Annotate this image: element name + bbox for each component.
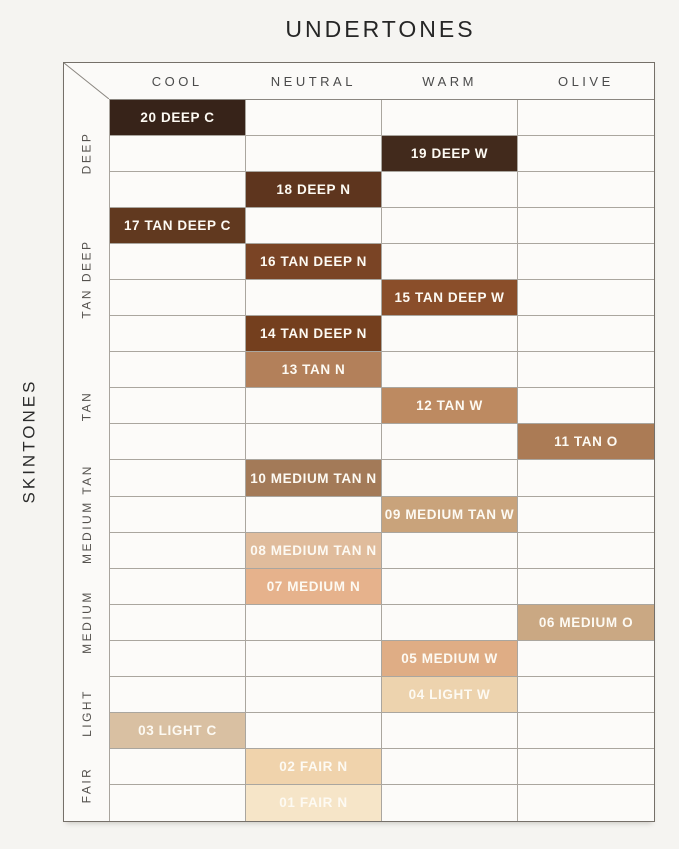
grid-cell: [518, 713, 654, 749]
skintone-group-label: DEEP: [80, 132, 94, 175]
shade-chip: 19 DEEP W: [382, 136, 518, 172]
shade-chip: 07 MEDIUM N: [246, 569, 382, 605]
shade-chip-label: 19 DEEP W: [411, 146, 488, 161]
grid-cell: [518, 497, 654, 533]
grid-cell: [382, 100, 518, 136]
grid-cell: [518, 352, 654, 388]
skintone-group-tan-deep: TAN DEEP: [64, 207, 109, 351]
grid-cell: [518, 244, 654, 280]
shade-chip: 10 MEDIUM TAN N: [246, 460, 382, 496]
shade-chip-label: 18 DEEP N: [276, 182, 350, 197]
shade-chip-label: 02 FAIR N: [279, 759, 347, 774]
grid-cell: [110, 497, 246, 533]
grid-cell: [110, 460, 246, 496]
undertone-header-olive: OLIVE: [518, 63, 654, 99]
shade-table: COOLNEUTRALWARMOLIVE DEEPTAN DEEPTANMEDI…: [63, 62, 655, 822]
grid-cell: [518, 100, 654, 136]
shade-chip-label: 05 MEDIUM W: [401, 651, 498, 666]
shade-chip: 15 TAN DEEP W: [382, 280, 518, 316]
grid-cell: [382, 352, 518, 388]
shade-chip: 06 MEDIUM O: [518, 605, 654, 641]
shade-chip-label: 06 MEDIUM O: [539, 615, 633, 630]
shade-chip-label: 17 TAN DEEP C: [124, 218, 231, 233]
shade-chip-label: 08 MEDIUM TAN N: [250, 543, 377, 558]
grid-cell: [246, 208, 382, 244]
grid-cell: [110, 352, 246, 388]
grid-cell: [382, 460, 518, 496]
grid-cell: [518, 533, 654, 569]
grid-cell: [518, 316, 654, 352]
grid-cell: [382, 208, 518, 244]
grid-cell: [518, 785, 654, 821]
shade-chip: 13 TAN N: [246, 352, 382, 388]
shade-grid: 20 DEEP C19 DEEP W18 DEEP N17 TAN DEEP C…: [109, 99, 654, 821]
shade-chip: 18 DEEP N: [246, 172, 382, 208]
grid-cell: [110, 280, 246, 316]
skintone-group-label: LIGHT: [80, 689, 94, 737]
shade-chip-label: 10 MEDIUM TAN N: [250, 471, 377, 486]
grid-cell: [382, 713, 518, 749]
grid-cell: [110, 136, 246, 172]
shade-chip-label: 15 TAN DEEP W: [394, 290, 504, 305]
grid-cell: [382, 172, 518, 208]
grid-cell: [246, 100, 382, 136]
grid-cell: [246, 497, 382, 533]
shade-chip: 20 DEEP C: [110, 100, 246, 136]
shade-chip-label: 16 TAN DEEP N: [260, 254, 367, 269]
grid-cell: [246, 388, 382, 424]
shade-chip: 01 FAIR N: [246, 785, 382, 821]
shade-chip-label: 13 TAN N: [282, 362, 346, 377]
grid-cell: [382, 244, 518, 280]
shade-chip-label: 09 MEDIUM TAN W: [385, 507, 515, 522]
grid-cell: [382, 569, 518, 605]
skintone-group-label: MEDIUM: [80, 591, 94, 655]
skintone-group-label: TAN DEEP: [80, 240, 94, 319]
grid-cell: [518, 388, 654, 424]
grid-cell: [518, 569, 654, 605]
undertone-header-neutral: NEUTRAL: [245, 63, 381, 99]
skintone-group-light: LIGHT: [64, 677, 109, 749]
grid-cell: [382, 785, 518, 821]
grid-cell: [382, 749, 518, 785]
grid-cell: [382, 533, 518, 569]
grid-cell: [518, 749, 654, 785]
corner-diagonal-icon: [64, 63, 109, 99]
undertone-header-cool: COOL: [109, 63, 245, 99]
shade-chip: 02 FAIR N: [246, 749, 382, 785]
shade-chip: 08 MEDIUM TAN N: [246, 533, 382, 569]
shade-chip-label: 12 TAN W: [416, 398, 483, 413]
shade-chip: 16 TAN DEEP N: [246, 244, 382, 280]
skintone-group-tan: TAN: [64, 352, 109, 460]
grid-cell: [110, 244, 246, 280]
shade-chip: 03 LIGHT C: [110, 713, 246, 749]
shade-chip-label: 11 TAN O: [554, 434, 618, 449]
y-axis-label: SKINTONES: [0, 62, 58, 820]
shade-chip: 12 TAN W: [382, 388, 518, 424]
shade-chart: UNDERTONES SKINTONES COOLNEUTRALWARMOLIV…: [0, 0, 679, 849]
grid-cell: [110, 641, 246, 677]
grid-cell: [246, 280, 382, 316]
grid-cell: [246, 605, 382, 641]
grid-cell: [110, 749, 246, 785]
grid-cell: [518, 172, 654, 208]
shade-chip: 04 LIGHT W: [382, 677, 518, 713]
skintone-group-medium: MEDIUM: [64, 568, 109, 676]
grid-cell: [518, 677, 654, 713]
skintone-groups: DEEPTAN DEEPTANMEDIUM TANMEDIUMLIGHTFAIR: [64, 99, 109, 821]
grid-cell: [382, 424, 518, 460]
grid-cell: [382, 316, 518, 352]
grid-cell: [110, 388, 246, 424]
shade-chip-label: 03 LIGHT C: [138, 723, 217, 738]
grid-cell: [246, 424, 382, 460]
skintone-group-fair: FAIR: [64, 749, 109, 821]
grid-cell: [518, 641, 654, 677]
grid-cell: [246, 641, 382, 677]
shade-chip: 11 TAN O: [518, 424, 654, 460]
grid-cell: [110, 172, 246, 208]
chart-title: UNDERTONES: [108, 16, 653, 43]
skintone-group-label: TAN: [79, 391, 93, 422]
skintone-group-deep: DEEP: [64, 99, 109, 207]
undertone-header-warm: WARM: [382, 63, 518, 99]
grid-cell: [110, 533, 246, 569]
grid-cell: [110, 316, 246, 352]
shade-chip-label: 04 LIGHT W: [409, 687, 491, 702]
grid-cell: [518, 136, 654, 172]
grid-cell: [382, 605, 518, 641]
undertone-headers: COOLNEUTRALWARMOLIVE: [109, 63, 654, 99]
grid-cell: [518, 460, 654, 496]
shade-chip: 09 MEDIUM TAN W: [382, 497, 518, 533]
skintone-group-medium-tan: MEDIUM TAN: [64, 460, 109, 568]
y-axis-label-text: SKINTONES: [19, 379, 39, 504]
grid-cell: [110, 785, 246, 821]
grid-cell: [110, 424, 246, 460]
shade-chip: 17 TAN DEEP C: [110, 208, 246, 244]
skintone-group-label: FAIR: [79, 767, 93, 804]
shade-chip-label: 14 TAN DEEP N: [260, 326, 367, 341]
grid-cell: [110, 569, 246, 605]
grid-cell: [246, 713, 382, 749]
shade-chip-label: 20 DEEP C: [140, 110, 214, 125]
skintone-group-label: MEDIUM TAN: [80, 464, 94, 564]
shade-chip: 14 TAN DEEP N: [246, 316, 382, 352]
grid-cell: [518, 208, 654, 244]
grid-cell: [518, 280, 654, 316]
shade-chip-label: 07 MEDIUM N: [267, 579, 361, 594]
shade-chip-label: 01 FAIR N: [279, 795, 347, 810]
grid-cell: [246, 677, 382, 713]
grid-cell: [110, 677, 246, 713]
shade-chip: 05 MEDIUM W: [382, 641, 518, 677]
grid-cell: [246, 136, 382, 172]
grid-cell: [110, 605, 246, 641]
